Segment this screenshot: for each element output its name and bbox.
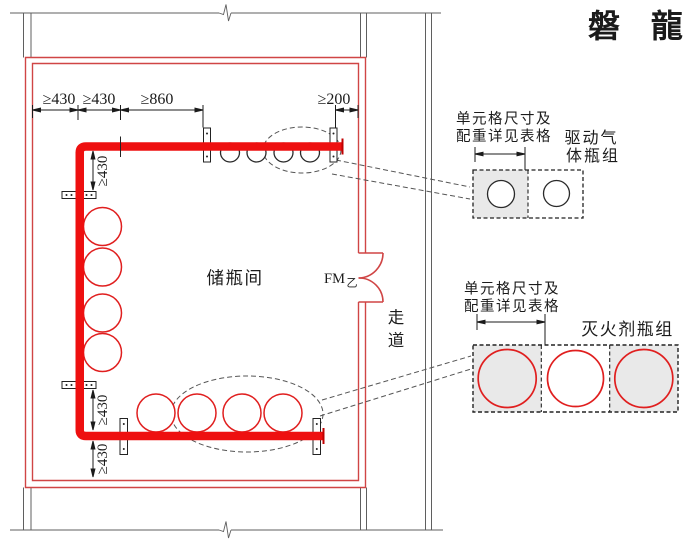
agent-group-label: 灭火剂瓶组 [581,320,674,339]
agent-bottle-circle [137,394,175,432]
driver-group-label-line2: 体瓶组 [566,147,620,165]
dim-label-top-3: ≥860 [141,91,174,108]
agent-bottle-circle [178,394,216,432]
agent-bottle-circle [223,394,261,432]
dim-label-side-1: ≥430 [95,156,111,187]
agent-bottle-circle [84,294,122,332]
room-label: 储瓶间 [207,268,264,288]
dim-arrow [113,108,121,112]
bolt-dot [206,133,208,135]
agent-bottles [84,208,303,433]
door-class-label: 乙 [347,277,358,290]
dim-arrow [336,108,344,112]
dim-arrow [537,320,545,324]
door-leaf-arc [359,253,384,278]
door-leaf-arc [359,278,384,302]
bolt-dot [86,384,88,386]
bolt-dot [71,384,73,386]
cell-note-line1: 单元格尺寸及 [456,111,552,128]
bolt-dot [91,194,93,196]
driver-group-label-line1: 驱动气 [564,129,618,147]
bolt-dot [316,423,318,425]
detail-cell-gray [610,345,678,412]
bolt-dot [123,448,125,450]
leader-line [332,174,470,199]
agent-bottle-circle [84,248,122,286]
dim-label-top-2: ≥430 [83,91,116,108]
leader-line [322,356,471,400]
break-symbol [219,522,231,539]
agent-group-detail: 单元格尺寸及 配重详见表格 灭火剂瓶组 [464,281,678,413]
dim-arrow [195,108,203,112]
driver-group-detail: 单元格尺寸及 配重详见表格 驱动气 体瓶组 [456,111,620,219]
bolt-dot [86,194,88,196]
bolt-dot [206,156,208,158]
bolt-dot [316,448,318,450]
driver-detail-bottle [488,181,515,208]
corridor-label-char2: 道 [388,331,405,350]
leader-line [336,160,470,187]
bolt-dot [91,384,93,386]
dim-arrow [78,108,86,112]
bolt-dot [333,156,335,158]
dim-arrow [517,152,525,156]
driver-detail-bottle [544,181,570,207]
watermark-text: 磐 龍 [588,8,688,44]
dim-label-side-3: ≥430 [95,444,111,475]
bolt-dot [123,423,125,425]
dim-arrow [477,320,485,324]
dim-arrow [475,152,483,156]
leader-line [320,369,471,416]
dim-arrow [70,108,78,112]
bolt-dot [71,194,73,196]
pipe-manifold [80,147,342,437]
agent-bottle-circle [84,208,122,246]
pipe-end-caps [324,139,343,445]
detail-cell-gray [473,345,541,412]
dim-label-side-2: ≥430 [95,395,111,426]
agent-bottle-circle [84,334,122,372]
agent-detail-bottle [548,351,604,407]
cell-note-line2: 配重详见表格 [456,128,552,145]
cell-note-line2: 配重详见表格 [464,298,560,315]
door-label: FM [324,271,345,287]
door-symbol [359,253,384,302]
break-symbol [219,5,231,22]
dim-label-top-1: ≥430 [43,91,76,108]
bolt-dot [66,194,68,196]
cell-note-line1: 单元格尺寸及 [464,281,560,298]
dim-arrow [121,108,129,112]
cad-drawing-canvas: 磐 龍 [0,0,688,540]
floor-plan-svg: 磐 龍 [0,0,688,540]
dim-arrow [33,108,41,112]
corridor-label-char1: 走 [388,308,405,327]
bolt-dot [66,384,68,386]
bolt-dot [333,133,335,135]
dim-arrow [350,108,358,112]
dim-label-top-4: ≥200 [318,91,351,108]
agent-bottle-circle [264,394,302,432]
